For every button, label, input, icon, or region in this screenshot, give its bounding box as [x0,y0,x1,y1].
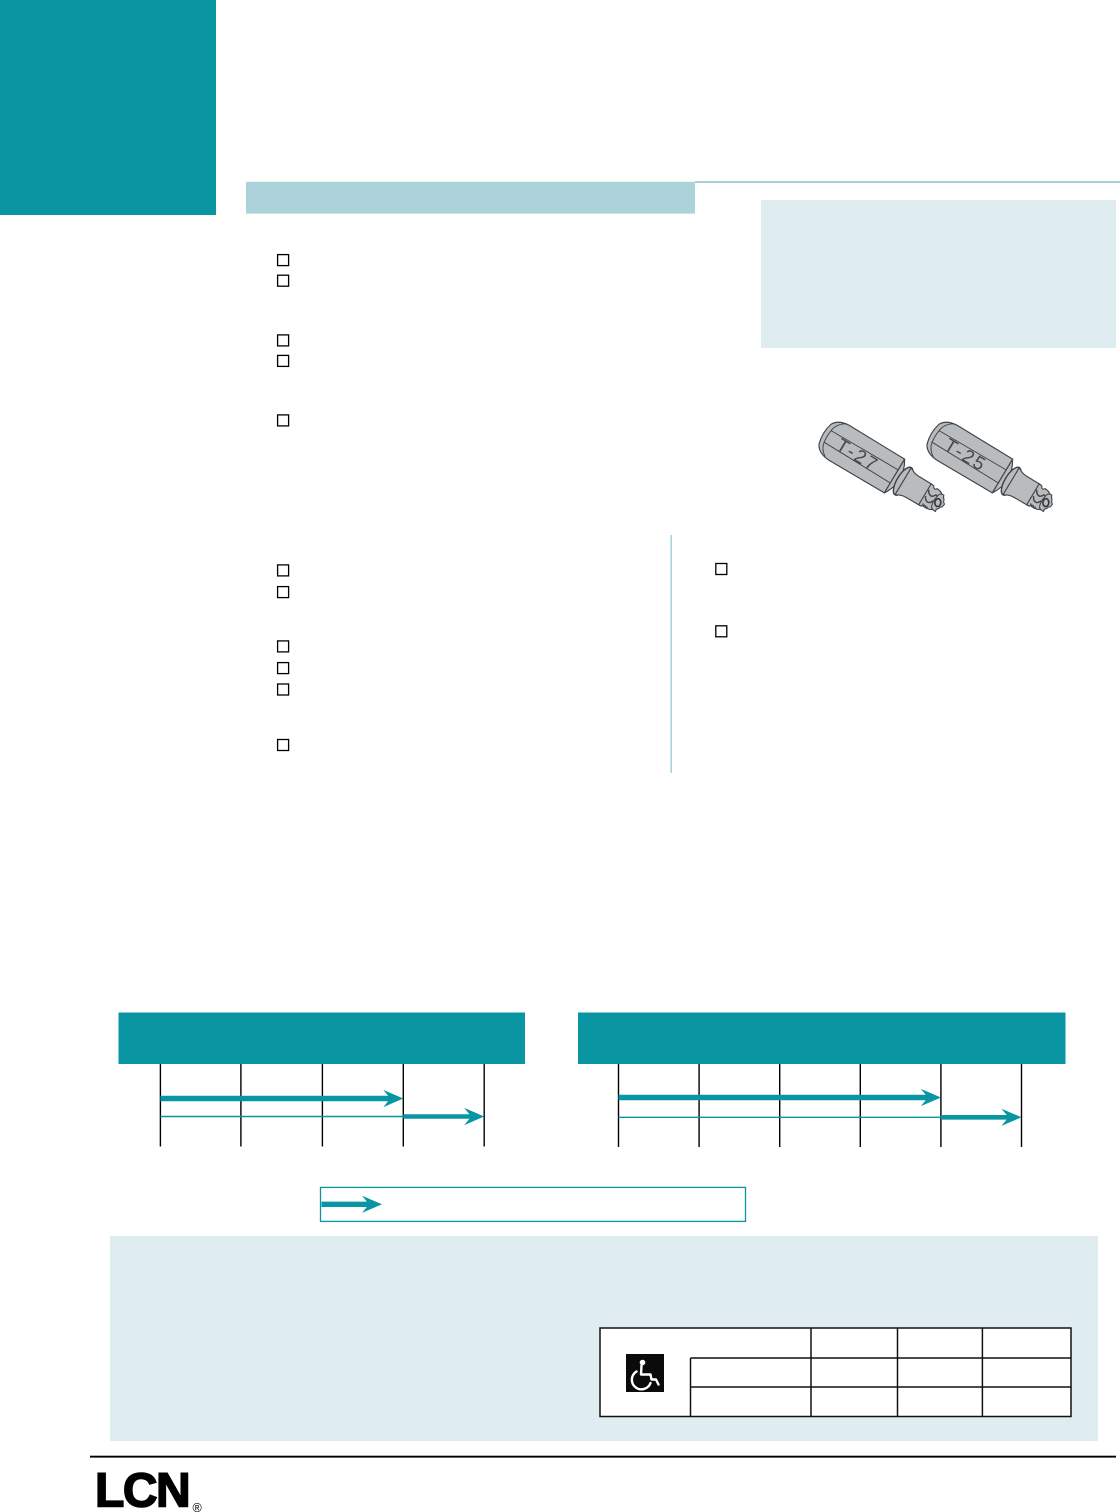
svg-text:LCN: LCN [95,1465,189,1512]
svg-text:®: ® [193,1501,203,1512]
